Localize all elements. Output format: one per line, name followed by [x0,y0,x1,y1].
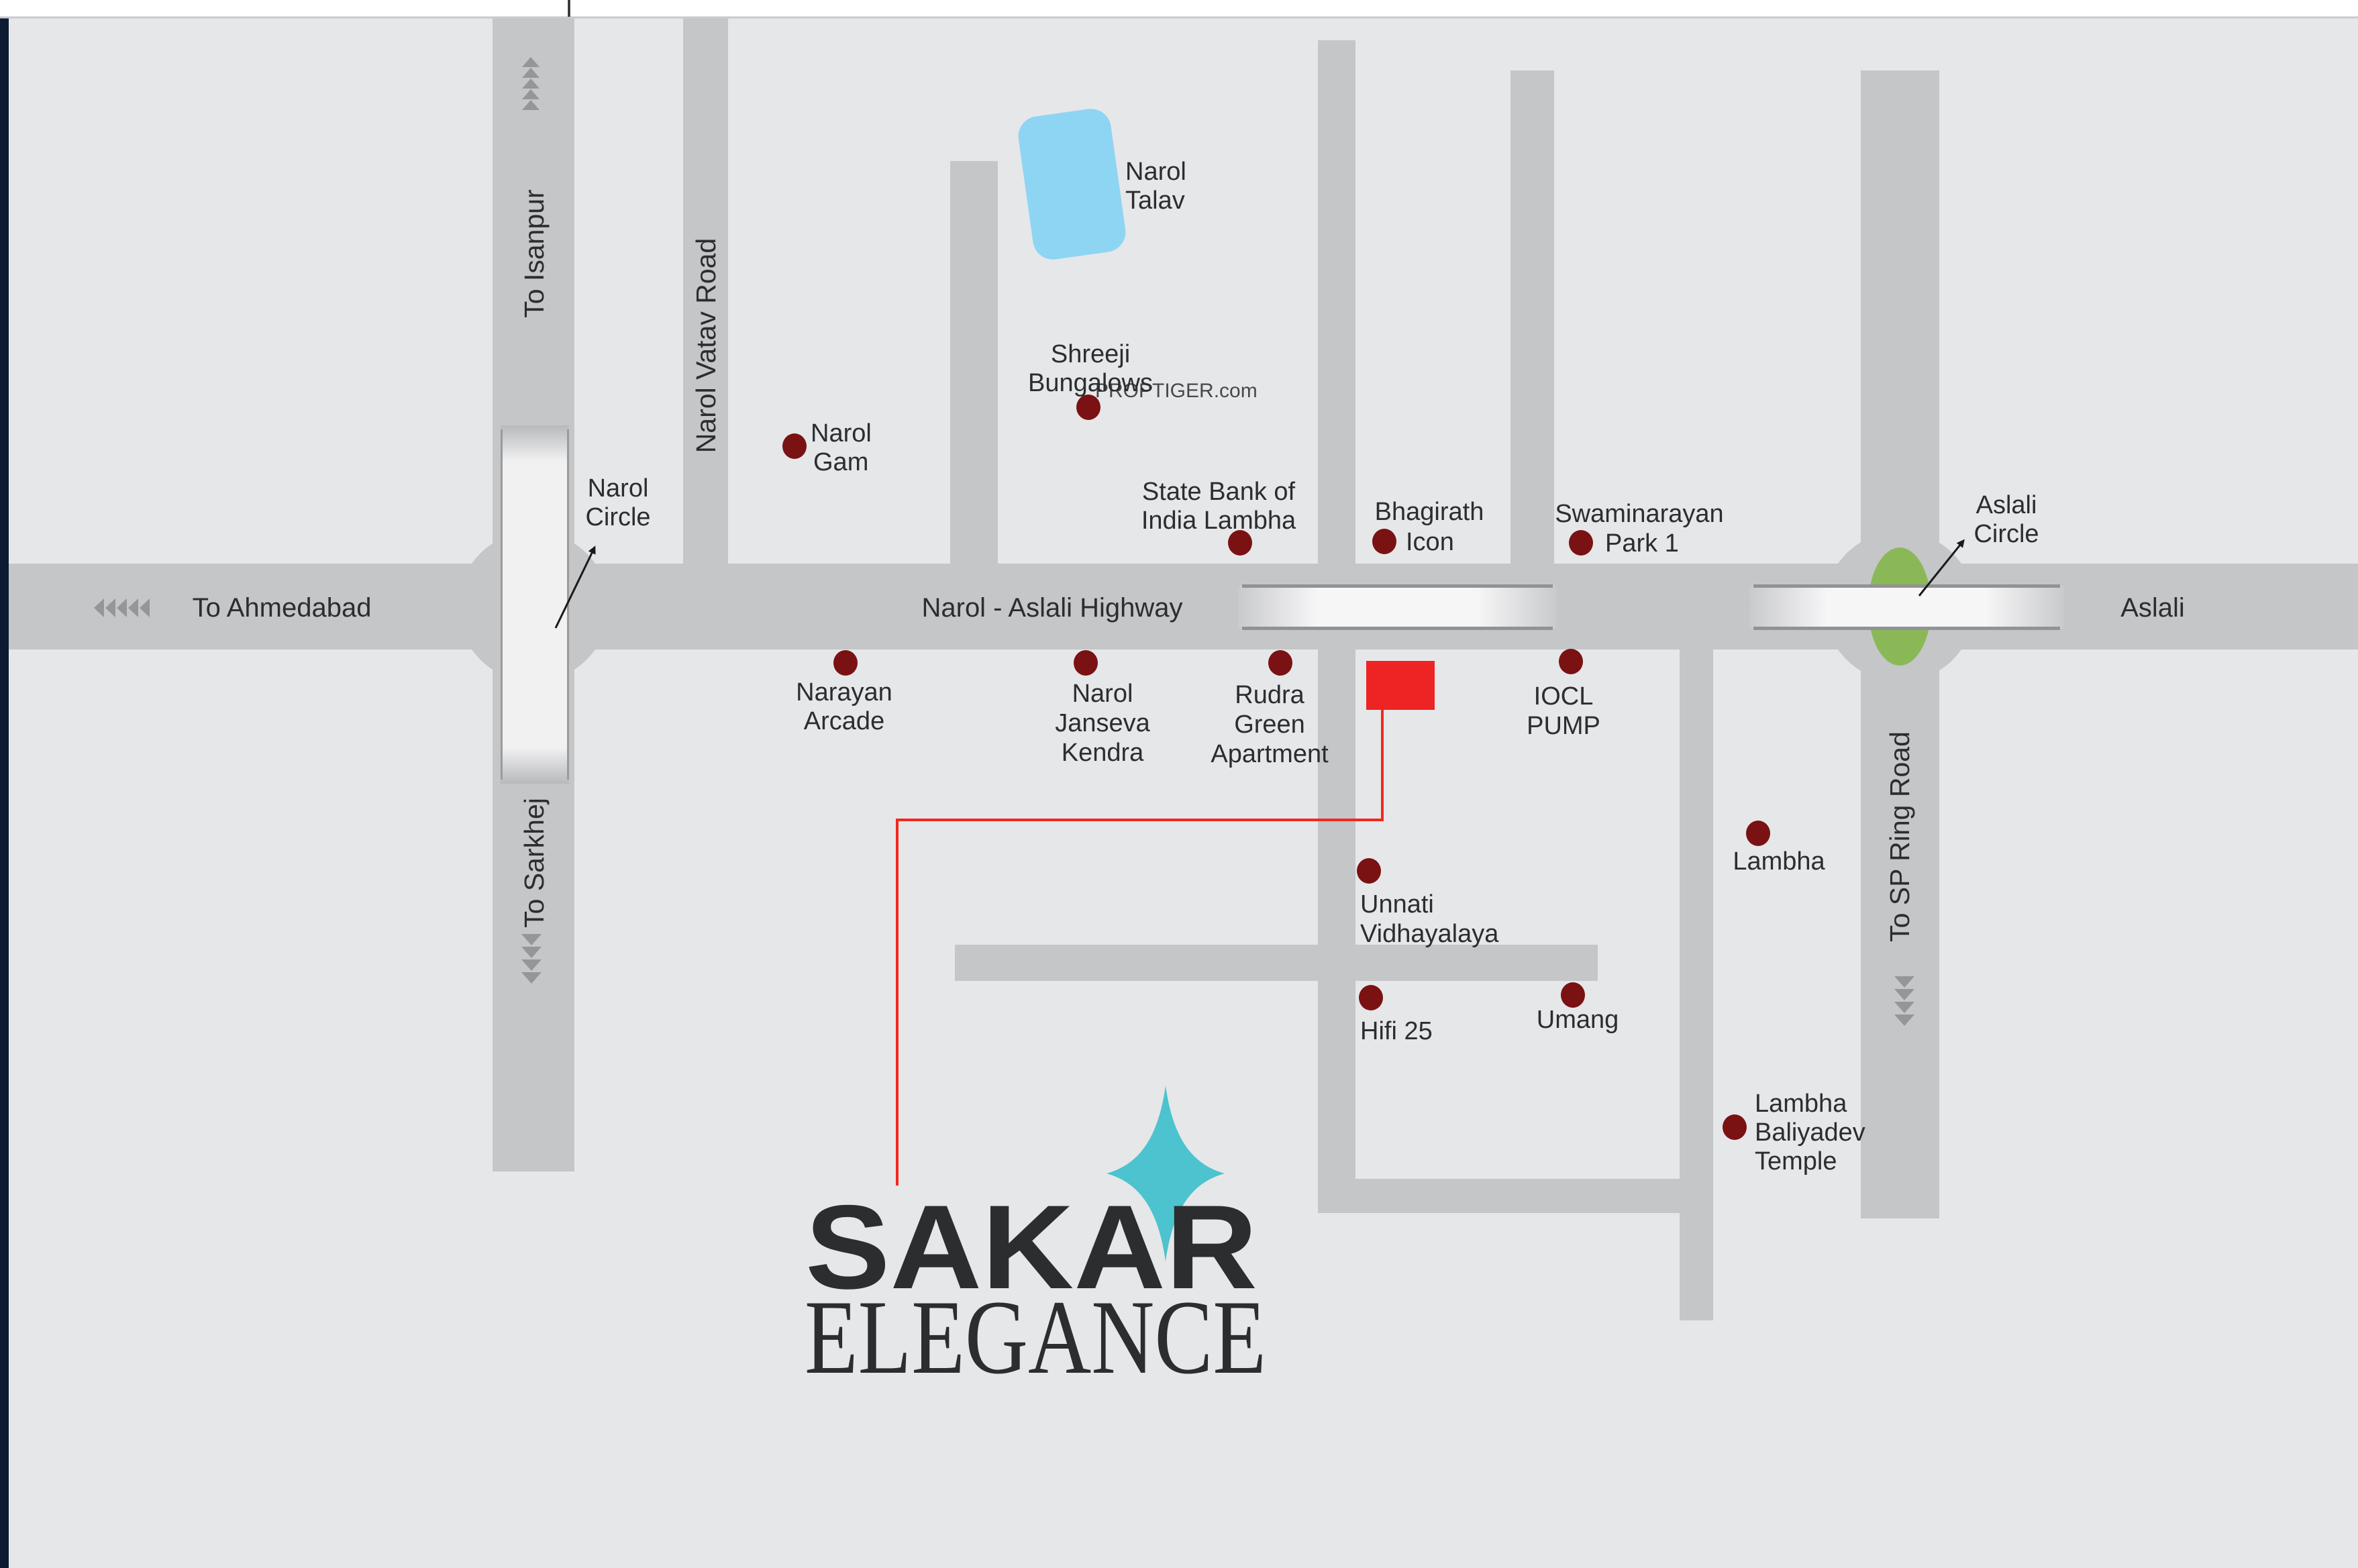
lambha-dot [1746,821,1770,846]
bhagirath-icon-label: Icon [1406,528,1454,556]
swaminarayan-park-1-dot [1569,530,1593,556]
left-navy-strip [0,17,9,1568]
rudra-green-apartment-label: Green [1234,711,1305,739]
iocl-pump-label: PUMP [1527,712,1600,740]
umang-dot [1561,982,1585,1008]
flyover-aslali-side-bottom-edge [1753,627,2060,630]
watermark: PROPTIGER.com [1095,380,1258,402]
narol-talav-label: Narol [1125,158,1186,186]
aslali-label: Aslali [2120,593,2185,623]
narol-vatav-road-label: Narol Vatav Road [690,238,721,454]
narayan-arcade-dot [833,650,858,676]
bhagirath-icon-label: Bhagirath [1375,498,1484,526]
map-canvas: NarolTalavNarolGamShreejiBungalowsState … [0,0,2358,1568]
state-bank-of-india-lambha-label: India Lambha [1141,507,1296,535]
narol-janseva-kendra-dot [1074,650,1098,676]
narol-gam-dot [782,433,807,459]
to-isanpur-label: To Isanpur [519,189,550,317]
hifi-25-label: Hifi 25 [1360,1017,1433,1045]
narol-janseva-kendra-label: Kendra [1062,739,1144,767]
logo-wordmark-elegance: ELEGANCE [805,1279,1266,1396]
flyover-narol-side-top-edge [1242,584,1553,588]
flyover-narol-side [1238,584,1557,630]
lambha-baliyadev-temple-dot [1723,1114,1747,1140]
swaminarayan-park-1-label: Swaminarayan [1555,500,1723,528]
rudra-green-apartment-dot [1268,650,1292,676]
road-bhagirath-left-road-upper [1318,40,1355,564]
iocl-pump-dot [1559,649,1583,674]
flyover-aslali-side [1749,584,2064,630]
aslali-circle-label: Aslali [1976,491,2037,519]
top-white-band [0,0,2358,17]
road-lambha-road [1680,649,1713,1320]
unnati-vidhayalaya-label: Vidhayalaya [1360,920,1499,948]
road-unnati-cross-road [955,945,1598,981]
road-median [501,425,569,784]
to-sp-ring-road-label: To SP Ring Road [1884,731,1915,942]
flyover-aslali-side-top-edge [1753,584,2060,588]
rudra-green-apartment-label: Rudra [1235,681,1304,709]
shreeji-bungalows-label: Shreeji [1051,340,1130,368]
narol-talav-label: Talav [1125,187,1185,215]
to-sarkhej-label: To Sarkhej [519,798,550,928]
narol-janseva-kendra-label: Janseva [1055,709,1150,737]
lambha-baliyadev-temple-label: Baliyadev [1755,1118,1865,1147]
narayan-arcade-label: Narayan [796,678,892,707]
highway-label: Narol - Aslali Highway [921,593,1182,623]
road-bhagirath-right-road [1510,70,1554,564]
narol-janseva-kendra-label: Narol [1072,680,1133,708]
state-bank-of-india-lambha-label: State Bank of [1142,478,1296,506]
road-bottom-link-road [1318,1179,1713,1213]
bhagirath-icon-dot [1372,529,1396,554]
hifi-25-dot [1359,985,1383,1010]
narol-gam-label: Narol [811,419,872,448]
unnati-vidhayalaya-label: Unnati [1360,890,1434,919]
to-ahmedabad-label: To Ahmedabad [193,593,372,623]
narol-talav-water [1016,106,1129,262]
narol-gam-label: Gam [813,448,868,476]
lambha-label: Lambha [1733,847,1825,876]
rudra-green-apartment-label: Apartment [1211,740,1329,768]
narayan-arcade-label: Arcade [804,707,884,735]
lambha-baliyadev-temple-label: Temple [1755,1147,1837,1175]
lambha-baliyadev-temple-label: Lambha [1755,1090,1847,1118]
swaminarayan-park-1-label: Park 1 [1605,529,1679,558]
umang-label: Umang [1537,1006,1619,1034]
aslali-circle-label: Circle [1973,520,2039,548]
road-talav-side-road [950,161,998,564]
narol-circle-label: Narol [588,474,649,503]
iocl-pump-label: IOCL [1534,682,1594,711]
road-bhagirath-left-road-lower [1318,649,1355,1213]
road-median-edge [501,429,503,780]
sakar-elegance-location-map: NarolTalavNarolGamShreejiBungalowsState … [0,0,2358,1568]
site-marker [1366,661,1435,710]
unnati-vidhayalaya-dot [1357,858,1381,884]
flyover-narol-side-bottom-edge [1242,627,1553,630]
narol-circle-label: Circle [585,503,650,531]
